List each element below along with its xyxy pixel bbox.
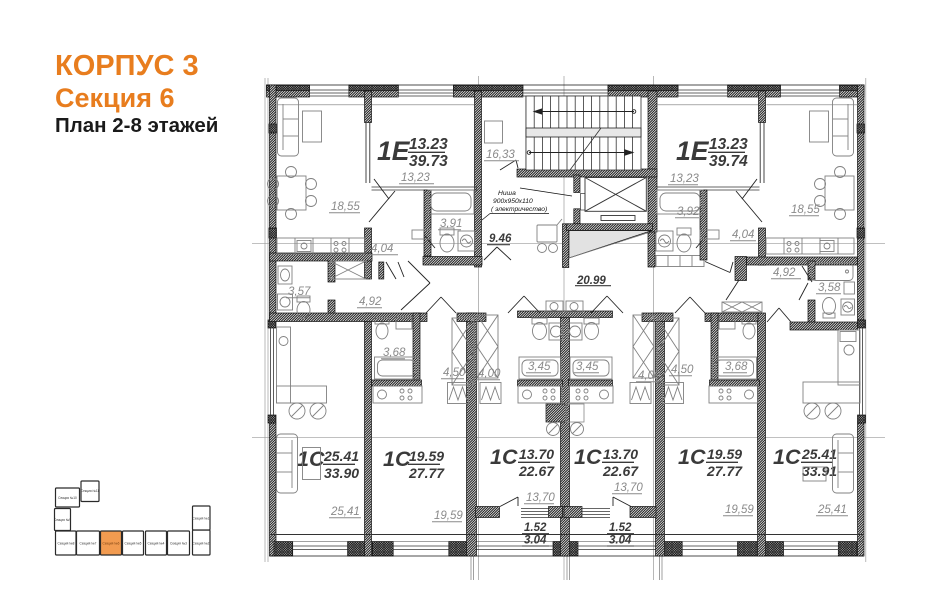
svg-text:18,55: 18,55: [791, 204, 820, 216]
svg-text:13,23: 13,23: [401, 172, 430, 184]
svg-text:3,92: 3,92: [677, 206, 700, 218]
svg-text:1С: 1С: [574, 445, 602, 469]
svg-text:9.46: 9.46: [489, 233, 512, 245]
svg-text:1.52: 1.52: [524, 522, 547, 534]
svg-text:3,68: 3,68: [725, 361, 748, 373]
svg-text:27.77: 27.77: [408, 465, 445, 481]
svg-text:19.59: 19.59: [707, 446, 742, 462]
svg-text:Секция №6: Секция №6: [103, 542, 120, 546]
svg-text:1.52: 1.52: [609, 522, 632, 534]
svg-text:4,92: 4,92: [359, 296, 382, 308]
svg-text:Секция №7: Секция №7: [80, 542, 97, 546]
svg-text:27.77: 27.77: [706, 463, 743, 479]
svg-text:25.41: 25.41: [323, 448, 359, 464]
svg-text:КОРПУС 3: КОРПУС 3: [55, 50, 199, 82]
svg-text:22.67: 22.67: [602, 463, 639, 479]
svg-text:Секция №5: Секция №5: [125, 542, 142, 546]
svg-text:3,45: 3,45: [528, 361, 551, 373]
svg-text:25,41: 25,41: [817, 504, 847, 516]
svg-text:1Е: 1Е: [377, 136, 411, 166]
svg-text:22.67: 22.67: [518, 463, 555, 479]
svg-text:4,92: 4,92: [773, 267, 796, 279]
svg-text:13,70: 13,70: [526, 492, 555, 504]
svg-text:1С: 1С: [678, 445, 706, 469]
svg-text:Секция №4: Секция №4: [148, 542, 165, 546]
svg-text:25.41: 25.41: [801, 446, 837, 462]
svg-text:33.90: 33.90: [324, 465, 359, 481]
svg-text:Ниша: Ниша: [498, 190, 516, 197]
svg-text:19,59: 19,59: [725, 504, 754, 516]
svg-text:1С: 1С: [490, 445, 518, 469]
svg-text:1С: 1С: [773, 445, 801, 469]
svg-text:33.91: 33.91: [802, 463, 837, 479]
svg-text:4,04: 4,04: [732, 229, 754, 241]
svg-text:900х950х110: 900х950х110: [493, 198, 533, 205]
svg-text:39.74: 39.74: [709, 153, 748, 170]
svg-text:Секция №11: Секция №11: [81, 489, 100, 493]
svg-text:39.73: 39.73: [409, 153, 448, 170]
svg-text:Секция №10: Секция №10: [58, 496, 77, 500]
svg-text:13.70: 13.70: [519, 446, 554, 462]
svg-text:19,59: 19,59: [434, 510, 463, 522]
svg-text:13.23: 13.23: [409, 136, 448, 153]
svg-text:3,45: 3,45: [576, 361, 599, 373]
svg-text:4,50: 4,50: [671, 364, 694, 376]
svg-text:3.04: 3.04: [609, 535, 632, 547]
svg-text:1Е: 1Е: [676, 136, 710, 166]
svg-text:3.04: 3.04: [524, 535, 547, 547]
svg-text:1С: 1С: [383, 447, 411, 471]
svg-text:4,04: 4,04: [371, 243, 393, 255]
svg-text:( электричество): ( электричество): [491, 206, 547, 213]
svg-text:13,23: 13,23: [670, 173, 699, 185]
svg-text:18,55: 18,55: [331, 201, 360, 213]
svg-text:Секция №3: Секция №3: [170, 542, 187, 546]
svg-text:13.70: 13.70: [603, 446, 638, 462]
svg-text:Секция №9: Секция №9: [54, 518, 71, 522]
svg-text:Секция №2: Секция №2: [193, 542, 210, 546]
svg-text:План 2-8 этажей: План 2-8 этажей: [55, 114, 218, 137]
svg-text:13.23: 13.23: [709, 136, 748, 153]
svg-text:Секция №1: Секция №1: [193, 517, 210, 521]
svg-text:3,58: 3,58: [818, 282, 841, 294]
svg-text:Секция №8: Секция №8: [58, 542, 75, 546]
svg-text:16,33: 16,33: [486, 149, 515, 161]
svg-text:Секция 6: Секция 6: [55, 83, 175, 113]
svg-text:13,70: 13,70: [614, 482, 643, 494]
svg-text:19.59: 19.59: [409, 448, 444, 464]
svg-text:25,41: 25,41: [330, 506, 360, 518]
